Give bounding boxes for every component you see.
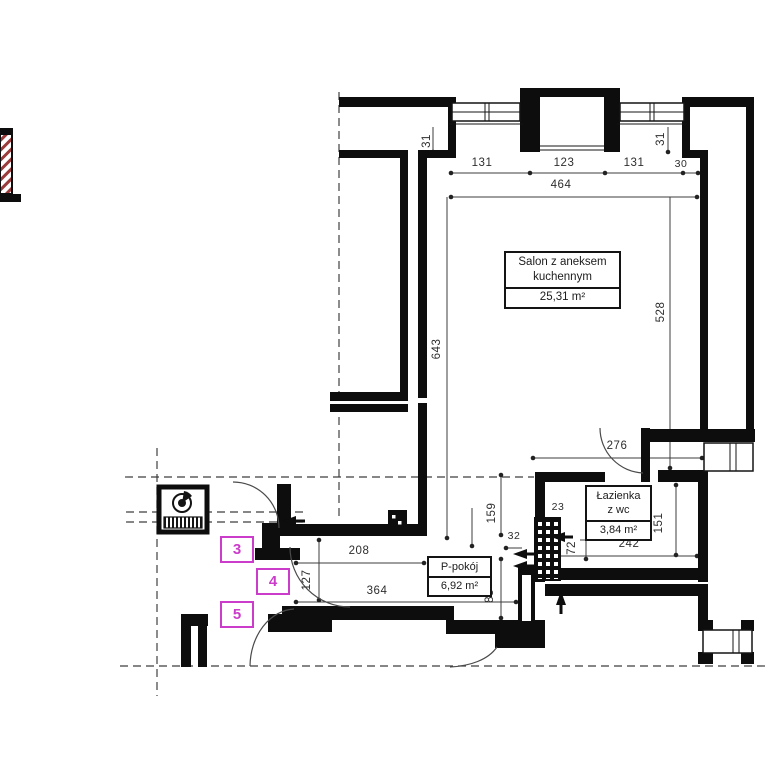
dashed-guides: [120, 92, 766, 696]
dim-salon-depth-left: 643: [431, 329, 443, 369]
dim-shaft-height: 72: [566, 528, 578, 568]
dim-door-opening: 127: [301, 560, 313, 600]
wall-section-hatch: [0, 128, 21, 202]
dim-window-left: 131: [462, 157, 502, 169]
bathroom-name-line2: z wc: [588, 503, 649, 517]
dim-shaft-top: 23: [543, 501, 573, 513]
salon-area: 25,31 m²: [504, 288, 621, 309]
marker-4: 4: [256, 568, 290, 595]
dim-window-right: 131: [614, 157, 654, 169]
dim-balcony-niche: 123: [544, 157, 584, 169]
dim-hall-width: 276: [597, 440, 637, 452]
bathroom-name-line1: Łazienka: [588, 489, 649, 503]
shaft-hatch: [535, 518, 560, 580]
stove-icon: [159, 487, 207, 532]
marker-3: 3: [220, 536, 254, 563]
salon-name-line1: Salon z aneksem: [507, 255, 618, 270]
dim-salon-depth-right: 528: [655, 292, 667, 332]
dim-bath-depth: 151: [653, 503, 665, 543]
marker-5: 5: [220, 601, 254, 628]
room-label-bathroom: Łazienka z wc 3,84 m²: [585, 485, 652, 541]
floor-plan-drawing: [0, 0, 780, 780]
salon-name-line2: kuchennym: [507, 270, 618, 285]
small-room-name: P-pokój: [427, 556, 492, 578]
dim-reveal-left: 31: [421, 121, 433, 161]
small-room-area: 6,92 m²: [427, 577, 492, 597]
dim-wall-total: 464: [541, 179, 581, 191]
dim-room-width: 364: [357, 585, 397, 597]
floor-plan: 131 123 131 30 464 276 208 364 23 32 242…: [0, 0, 780, 780]
bathroom-area: 3,84 m²: [585, 521, 652, 541]
dim-pier-right: 30: [666, 158, 696, 170]
dim-reveal-right: 31: [655, 119, 667, 159]
room-label-salon: Salon z aneksem kuchennym 25,31 m²: [504, 251, 621, 309]
dim-shaft-left: 32: [499, 530, 529, 542]
room-label-small-room: P-pokój 6,92 m²: [427, 556, 492, 597]
dim-kitchen-opening: 208: [339, 545, 379, 557]
dim-hall-depth: 159: [486, 493, 498, 533]
